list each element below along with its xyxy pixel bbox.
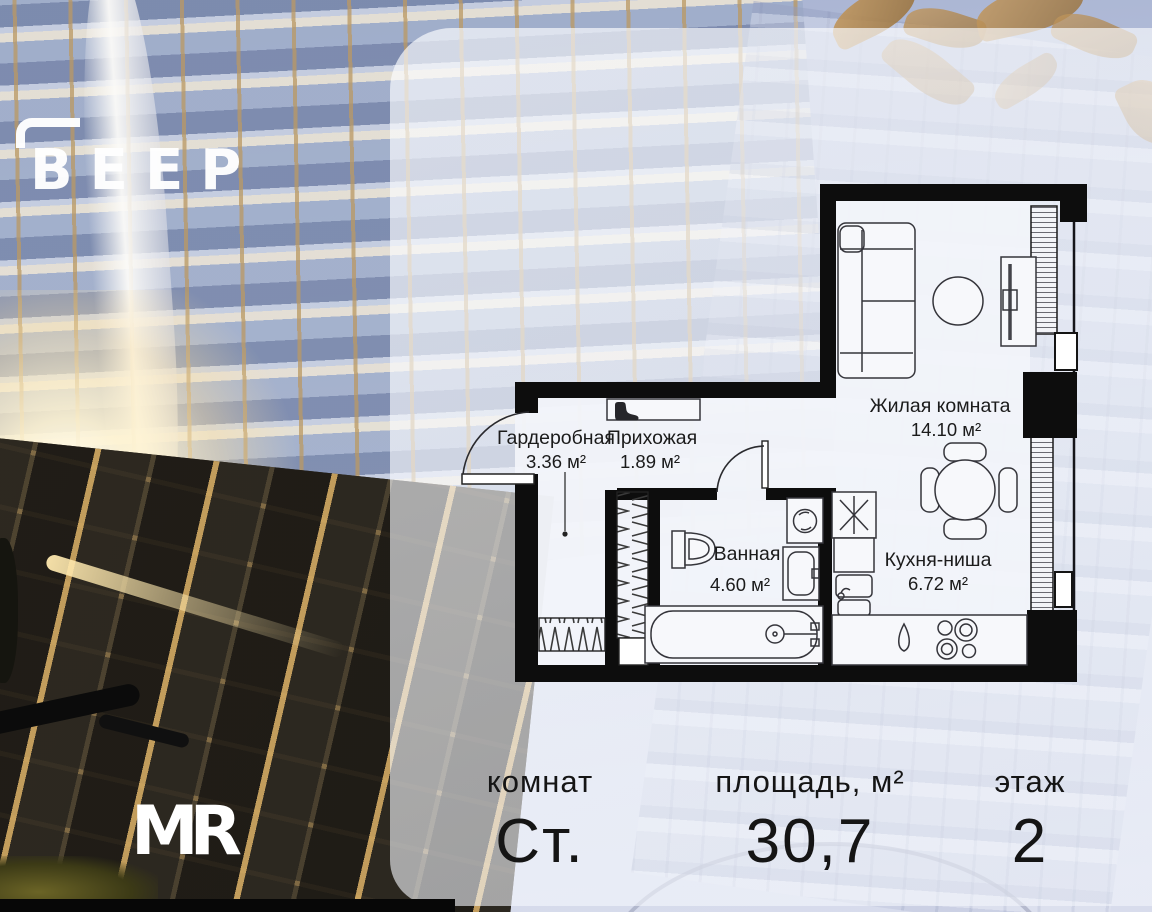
developer-logo: MR — [131, 792, 233, 871]
room-label-kitchen: Кухня-ниша — [885, 549, 992, 571]
listing-card: ВЕЕР MR — [0, 0, 1152, 912]
bathtub-icon — [645, 606, 823, 663]
shoe-cabinet-icon — [607, 399, 700, 421]
tv-console-icon — [1001, 257, 1036, 346]
summary-floor: этаж 2 — [945, 764, 1115, 877]
facade-box — [1055, 333, 1077, 370]
room-label-hallway: Прихожая — [607, 427, 697, 449]
floor-plan: Жилая комната 14.10 м² Кухня-ниша 6.72 м… — [450, 160, 1100, 690]
kitchen-counter — [832, 615, 1027, 665]
summary-floor-label: этаж — [945, 764, 1115, 800]
bottom-dark-strip — [0, 899, 455, 912]
summary-area: площадь, м² 30,7 — [660, 764, 960, 877]
room-label-bathroom: Ванная — [714, 543, 781, 565]
room-area-living: 14.10 м² — [911, 419, 981, 440]
summary-floor-value: 2 — [945, 806, 1115, 877]
room-label-living: Жилая комната — [870, 395, 1011, 417]
kitchen-units — [832, 492, 876, 616]
sofa-icon — [838, 223, 915, 378]
summary-area-value: 30,7 — [660, 806, 960, 877]
room-label-wardrobe: Гардеробная — [497, 427, 615, 449]
room-area-hallway: 1.89 м² — [620, 451, 680, 472]
complex-logo: ВЕЕР — [30, 138, 258, 203]
room-area-kitchen: 6.72 м² — [908, 573, 968, 594]
washing-machine-icon — [787, 498, 823, 543]
room-area-wardrobe: 3.36 м² — [526, 451, 586, 472]
summary-area-label: площадь, м² — [660, 764, 960, 800]
washbasin-icon — [783, 547, 819, 600]
summary-rooms-label: комнат — [430, 764, 650, 800]
summary-rooms-value: Ст. — [430, 806, 650, 877]
room-area-bathroom: 4.60 м² — [710, 574, 770, 595]
coffee-table-icon — [933, 277, 983, 325]
facade-box — [1055, 572, 1072, 607]
summary-rooms: комнат Ст. — [430, 764, 650, 877]
